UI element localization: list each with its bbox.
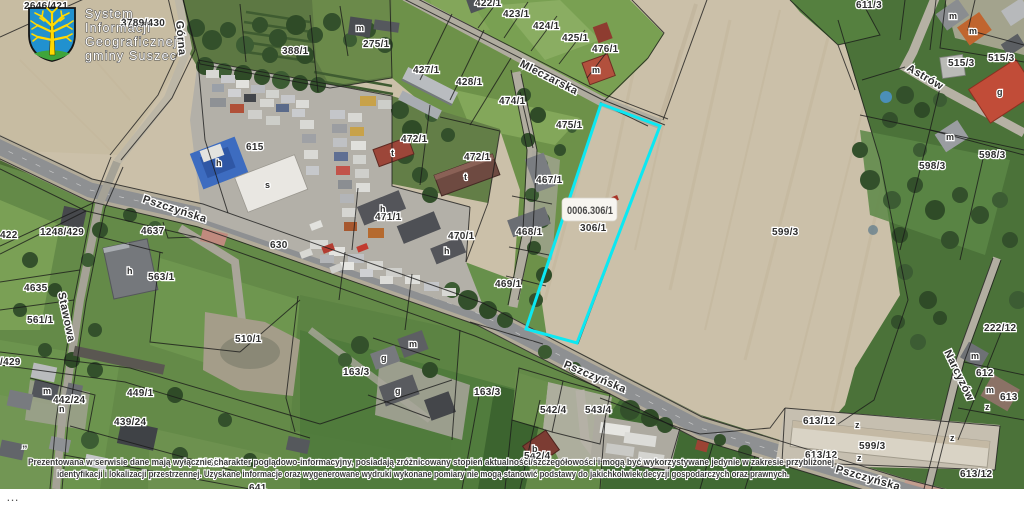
svg-text:m: m [969,26,977,36]
svg-text:613: 613 [1000,392,1018,403]
svg-text:0006.306/1: 0006.306/1 [567,205,613,217]
svg-text:t: t [391,148,394,158]
svg-text:4637: 4637 [141,226,165,237]
svg-text:m: m [986,385,994,395]
svg-text:599/3: 599/3 [859,441,886,452]
svg-text:h: h [127,266,133,276]
svg-text:z: z [855,420,860,430]
svg-text:599/3: 599/3 [772,227,799,238]
svg-text:467/1: 467/1 [536,175,563,186]
svg-text:427/1: 427/1 [413,65,440,76]
svg-text:471/1: 471/1 [375,212,402,223]
svg-text:b: b [532,444,538,454]
svg-text:470/1: 470/1 [448,231,475,242]
svg-text:449/1: 449/1 [127,388,154,399]
svg-text:472/1: 472/1 [464,152,491,163]
svg-text:m: m [409,339,417,349]
svg-text:m: m [971,351,979,361]
svg-text:442/24: 442/24 [53,395,86,406]
svg-text:h: h [216,158,222,168]
svg-text:306/1: 306/1 [580,223,607,234]
svg-text:510/1: 510/1 [235,334,262,345]
svg-text:515/3: 515/3 [948,58,975,69]
svg-text:611/3: 611/3 [856,0,882,11]
svg-text:163/3: 163/3 [343,367,370,378]
svg-text:”: ” [22,444,28,456]
svg-text:z: z [985,402,990,412]
svg-text:m: m [949,11,957,21]
svg-text:m: m [43,386,51,396]
svg-text:598/3: 598/3 [979,150,1006,161]
svg-text:Informacji: Informacji [85,21,151,35]
svg-text:425/1: 425/1 [562,33,589,44]
svg-text:gminy Suszec: gminy Suszec [85,49,177,63]
svg-text:469/1: 469/1 [495,279,522,290]
svg-text:m: m [592,65,600,75]
svg-text:424/1: 424/1 [533,21,560,32]
svg-text:542/4: 542/4 [540,405,567,416]
svg-text:222/12: 222/12 [984,323,1017,334]
svg-text:423/1: 423/1 [503,9,530,20]
svg-text:613/12: 613/12 [803,416,836,427]
svg-text:563/1: 563/1 [148,272,175,283]
svg-text:275/1: 275/1 [363,39,390,50]
svg-text:System: System [85,7,134,21]
svg-text:422/1: 422/1 [475,0,502,9]
svg-text:z: z [950,433,955,443]
svg-text:475/1: 475/1 [556,120,583,131]
svg-text:439/24: 439/24 [114,417,147,428]
svg-text:m: m [356,23,364,33]
svg-text:476/1: 476/1 [592,44,619,55]
svg-text:Geograficznej: Geograficznej [85,35,178,49]
svg-text:615: 615 [246,142,264,153]
svg-text:612: 612 [976,368,994,379]
svg-text:4635: 4635 [24,283,48,294]
svg-text:g: g [395,386,401,396]
svg-text:g: g [381,353,387,363]
svg-text:h: h [380,204,386,214]
svg-text:468/1: 468/1 [516,227,543,238]
svg-text:613/12: 613/12 [960,469,993,480]
svg-text:630: 630 [270,240,288,251]
svg-text:515/3: 515/3 [988,53,1015,64]
svg-text:m: m [946,132,954,142]
svg-text:z: z [857,453,862,463]
svg-text:s: s [265,180,270,190]
svg-text:561/1: 561/1 [27,315,54,326]
svg-text:1248/429: 1248/429 [40,227,84,238]
svg-text:n: n [59,404,65,414]
svg-text:identyfikacji i lokalizacji pr: identyfikacji i lokalizacji przestrzenne… [57,469,789,480]
svg-text:422: 422 [0,230,18,241]
svg-text:474/1: 474/1 [499,96,526,107]
svg-text:472/1: 472/1 [401,134,428,145]
svg-text:/429: /429 [0,357,21,368]
svg-text:163/3: 163/3 [474,387,501,398]
svg-text:t: t [464,172,467,182]
svg-text:543/4: 543/4 [585,405,612,416]
svg-text:h: h [444,246,450,256]
svg-text:Prezentowana w serwisie dane m: Prezentowana w serwisie dane mają wyłącz… [28,457,834,468]
svg-text:428/1: 428/1 [456,77,483,88]
svg-text:388/1: 388/1 [282,46,309,57]
svg-text:598/3: 598/3 [919,161,946,172]
svg-text:g: g [997,87,1003,97]
